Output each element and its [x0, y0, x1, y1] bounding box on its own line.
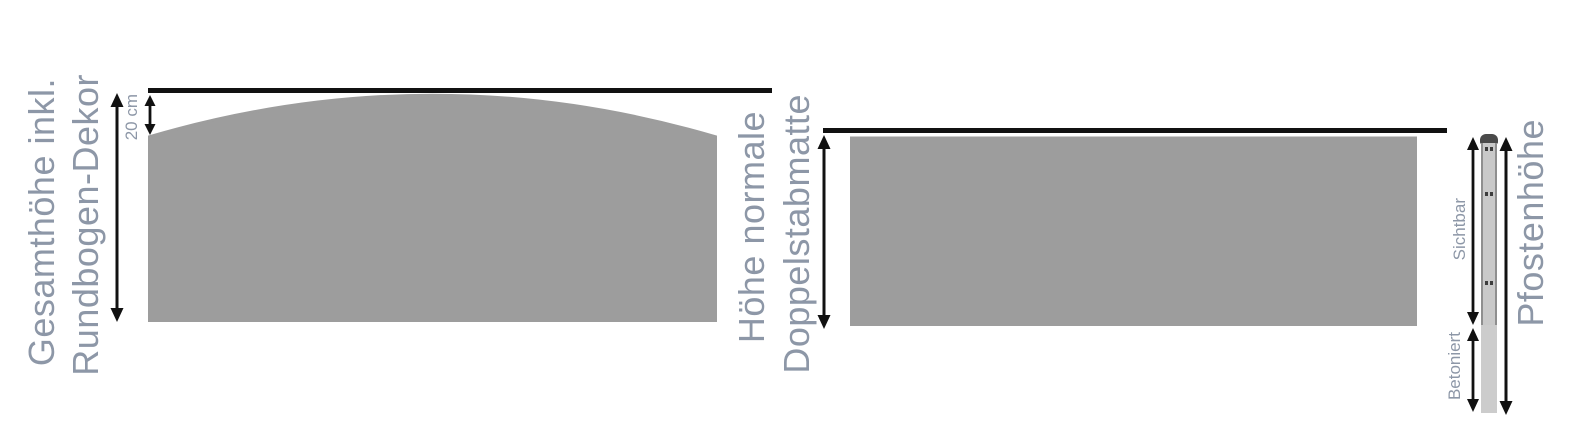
post-buried-label: Betoniert [1445, 332, 1464, 400]
post-visible-body [1481, 143, 1497, 325]
post-buried-body [1481, 325, 1497, 413]
mat-height-arrow [816, 135, 832, 329]
mat-height-label-line2: Doppelstabmatte [777, 94, 817, 374]
fence-height-diagram: Gesamthöhe inkl. Rundbogen-Dekor 20 cm [0, 0, 1587, 425]
arched-mesh-wires [148, 93, 717, 322]
arched-fence-panel [148, 93, 717, 324]
post-visible-arrow [1465, 137, 1481, 325]
flat-panel-reference-line [823, 128, 1447, 133]
flat-fence-panel [850, 135, 1417, 327]
post-bracket-dot [1485, 281, 1488, 285]
total-height-label-line2: Rundbogen-Dekor [66, 74, 106, 376]
flat-mesh-wires [850, 137, 1417, 327]
post-height-label: Pfostenhöhe [1511, 119, 1551, 327]
post-bracket-dot [1485, 192, 1488, 196]
post-buried-arrow [1465, 328, 1481, 412]
post-bracket-dot [1490, 147, 1493, 151]
post-bracket-dot [1490, 281, 1493, 285]
post-bracket-dot [1485, 147, 1488, 151]
total-height-label-line1: Gesamthöhe inkl. [22, 78, 62, 366]
mat-height-label-line1: Höhe normale [732, 111, 772, 343]
arch-rise-label: 20 cm [122, 94, 141, 140]
post-bracket-dot [1490, 192, 1493, 196]
